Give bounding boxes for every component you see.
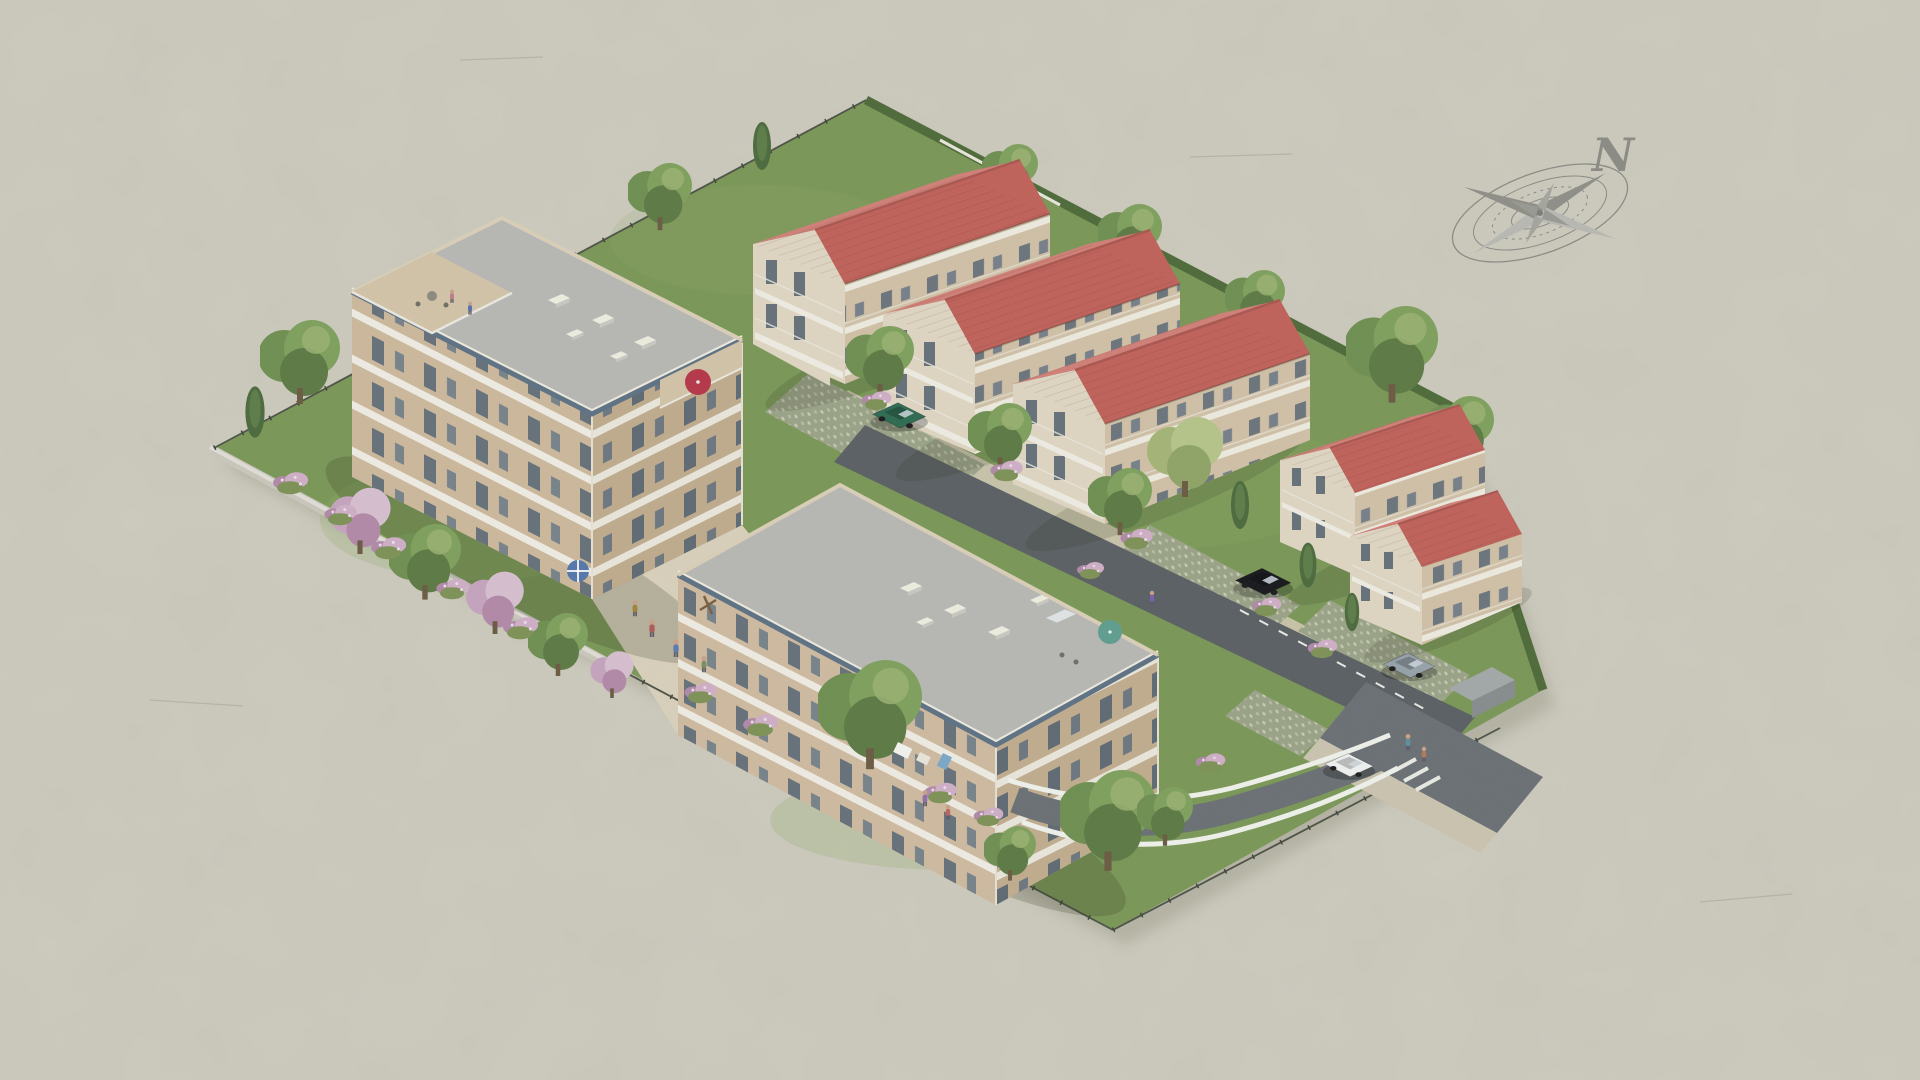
aerial-render: N [0, 0, 1920, 1080]
grain-overlay [0, 0, 1920, 1080]
